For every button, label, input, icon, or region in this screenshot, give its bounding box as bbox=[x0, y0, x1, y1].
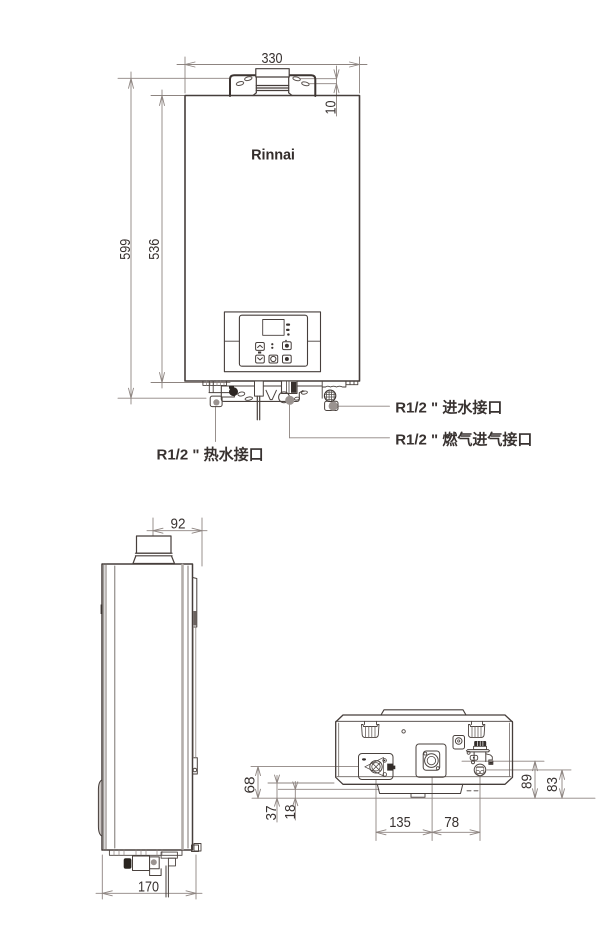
svg-text:89: 89 bbox=[518, 774, 535, 789]
svg-text:83: 83 bbox=[544, 777, 561, 792]
svg-text:170: 170 bbox=[138, 879, 159, 896]
svg-text:37: 37 bbox=[263, 806, 280, 821]
svg-text:78: 78 bbox=[444, 814, 459, 831]
svg-text:536: 536 bbox=[146, 239, 163, 260]
svg-text:Rinnai: Rinnai bbox=[251, 148, 295, 164]
svg-text:10: 10 bbox=[322, 101, 339, 115]
svg-text:R1/2 " 进水接口: R1/2 " 进水接口 bbox=[395, 399, 502, 417]
svg-text:330: 330 bbox=[262, 50, 283, 67]
svg-text:68: 68 bbox=[242, 777, 259, 794]
svg-text:R1/2 " 热水接口: R1/2 " 热水接口 bbox=[157, 446, 264, 464]
svg-text:92: 92 bbox=[171, 516, 186, 533]
svg-text:135: 135 bbox=[389, 814, 411, 831]
svg-text:R1/2 " 燃气进气接口: R1/2 " 燃气进气接口 bbox=[395, 431, 532, 449]
svg-text:599: 599 bbox=[117, 239, 134, 260]
svg-text:18: 18 bbox=[282, 805, 299, 820]
